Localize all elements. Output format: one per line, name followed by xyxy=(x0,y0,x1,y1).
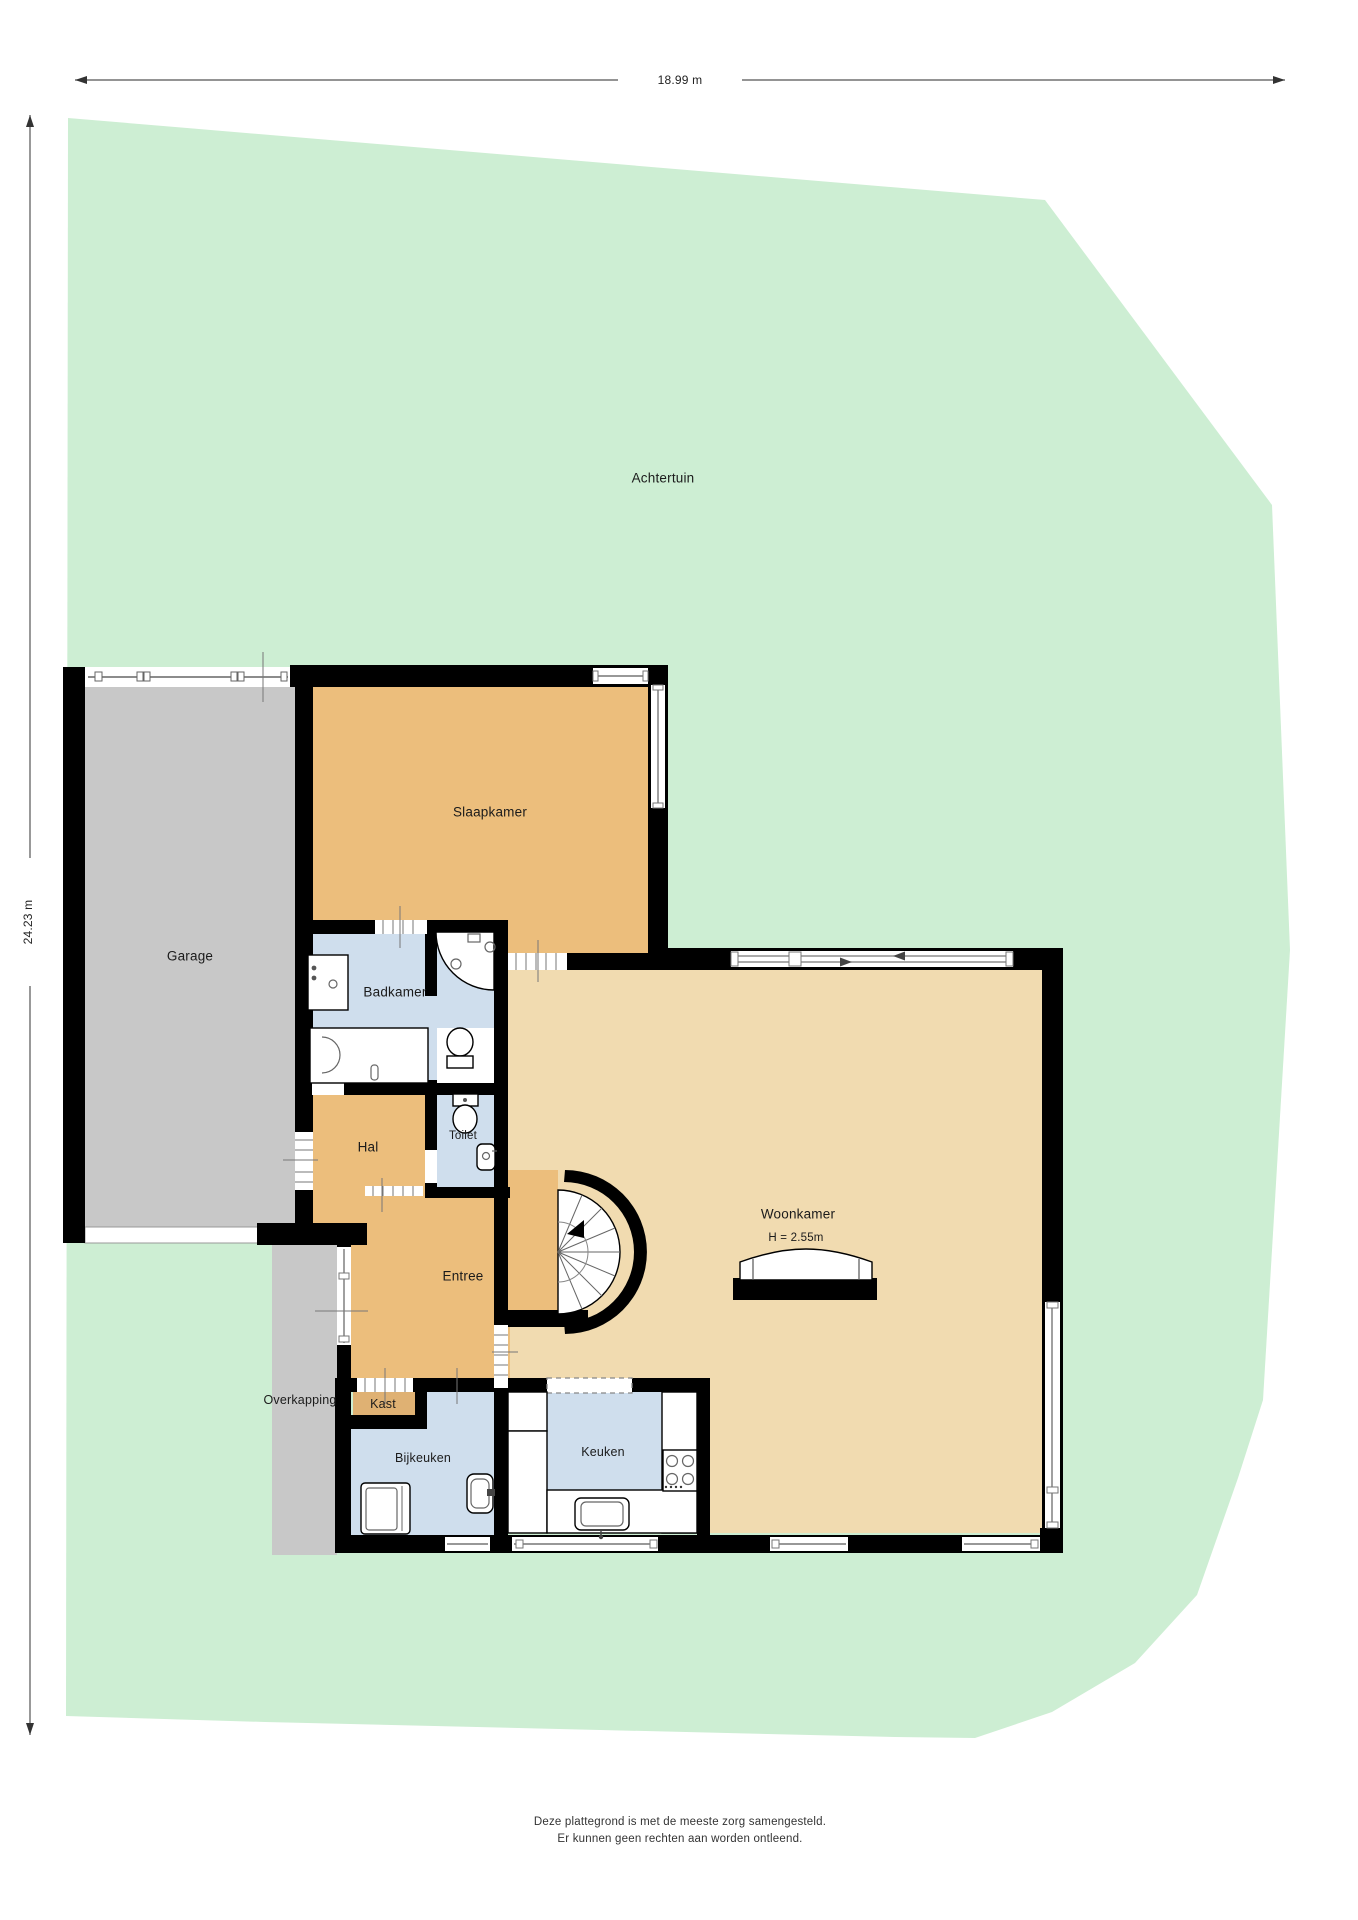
room-label-woonkamer: Woonkamer xyxy=(761,1207,835,1222)
keuken-overhead-cabinet xyxy=(547,1378,632,1393)
woonkamer-sliding-door xyxy=(731,951,1013,967)
woonkamer-right-window xyxy=(1045,1302,1060,1528)
slaapkamer-top-window xyxy=(593,668,648,684)
toilet-fixture xyxy=(453,1094,478,1133)
badkamer-sink xyxy=(308,955,348,1010)
bijkeuken-sink xyxy=(467,1474,495,1513)
width-dimension-label: 18.99 m xyxy=(654,73,707,87)
entree-front-door xyxy=(337,1247,351,1345)
room-label-kast: Kast xyxy=(370,1397,396,1411)
disclaimer-line-1: Deze plattegrond is met de meeste zorg s… xyxy=(534,1816,826,1828)
room-label-entree: Entree xyxy=(443,1269,484,1284)
toilet-corner-sink xyxy=(477,1144,497,1170)
badkamer-toilet xyxy=(437,1028,494,1083)
door-toilet xyxy=(425,1150,437,1183)
room-label-overkapping: Overkapping xyxy=(263,1393,336,1407)
room-label-toilet: Toilet xyxy=(449,1130,477,1142)
height-dimension-label: 24.23 m xyxy=(21,896,35,949)
room-height-label: H = 2.55m xyxy=(768,1232,823,1244)
door-garage-hal xyxy=(295,1132,313,1190)
woonkamer-sofa xyxy=(733,1249,877,1300)
floorplan-page: 18.99 m 24.23 m Achtertuin Garage Slaapk… xyxy=(0,0,1358,1920)
room-label-hal: Hal xyxy=(358,1140,379,1155)
room-label-badkamer: Badkamer xyxy=(363,985,426,1000)
room-label-garage: Garage xyxy=(167,949,213,964)
door-badkamer-hal xyxy=(312,1082,344,1095)
garage-floor xyxy=(85,687,295,1243)
room-label-achtertuin: Achtertuin xyxy=(632,471,695,486)
keuken-stove xyxy=(663,1450,697,1491)
threshold-hal-entree xyxy=(365,1186,423,1196)
badkamer-bathtub xyxy=(310,1028,428,1083)
slaapkamer-right-window xyxy=(651,685,665,808)
threshold-slaapkamer-badkamer xyxy=(375,920,427,934)
room-label-keuken: Keuken xyxy=(581,1445,625,1459)
disclaimer-line-2: Er kunnen geen rechten aan worden ontlee… xyxy=(557,1833,802,1845)
room-label-bijkeuken: Bijkeuken xyxy=(395,1451,451,1465)
room-label-slaapkamer: Slaapkamer xyxy=(453,805,527,820)
washing-machine xyxy=(361,1483,410,1534)
threshold-entree-woonkamer xyxy=(494,1325,508,1388)
